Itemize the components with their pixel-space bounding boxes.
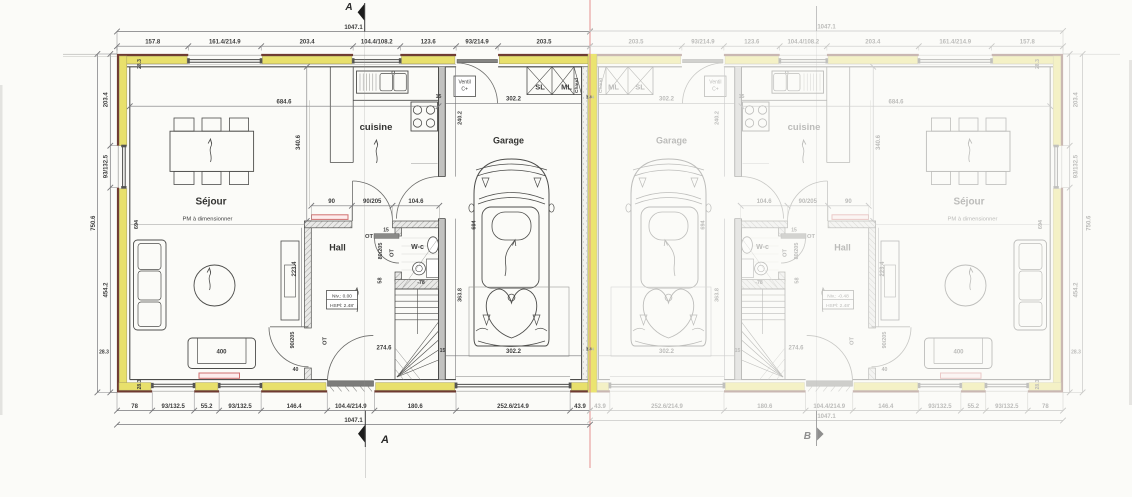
- svg-text:W-c: W-c: [411, 244, 424, 251]
- svg-text:40: 40: [882, 367, 888, 373]
- svg-text:90/205: 90/205: [290, 332, 296, 349]
- svg-text:A: A: [344, 2, 352, 13]
- svg-text:203.4: 203.4: [865, 40, 881, 46]
- svg-text:694: 694: [134, 219, 140, 229]
- svg-text:C+: C+: [461, 87, 468, 93]
- svg-text:203.4: 203.4: [1074, 92, 1080, 108]
- svg-text:28.3: 28.3: [99, 350, 109, 356]
- svg-text:302.2: 302.2: [506, 97, 522, 103]
- svg-text:93/132.5: 93/132.5: [104, 154, 110, 178]
- svg-text:750.6: 750.6: [1087, 215, 1093, 231]
- svg-text:OT: OT: [365, 234, 374, 240]
- svg-text:93/132.5: 93/132.5: [928, 404, 952, 410]
- svg-text:240.2: 240.2: [715, 111, 721, 125]
- svg-text:274.6: 274.6: [376, 346, 392, 352]
- svg-text:43.9: 43.9: [594, 404, 606, 410]
- svg-text:93/132.5: 93/132.5: [228, 404, 252, 410]
- svg-text:340.6: 340.6: [876, 134, 882, 150]
- svg-text:146.4: 146.4: [878, 404, 894, 410]
- svg-text:55.2: 55.2: [967, 404, 979, 410]
- svg-text:B: B: [804, 431, 811, 442]
- svg-text:203.4: 203.4: [300, 40, 316, 46]
- svg-text:302.2: 302.2: [659, 97, 675, 103]
- svg-text:HSPl: 2.48': HSPl: 2.48': [330, 303, 354, 309]
- svg-text:223.4: 223.4: [880, 261, 886, 277]
- svg-text:90/205: 90/205: [799, 199, 818, 205]
- svg-text:302.2: 302.2: [659, 349, 675, 355]
- svg-text:252.6/214.9: 252.6/214.9: [497, 404, 529, 410]
- svg-text:400: 400: [953, 350, 964, 356]
- svg-text:PM à dimensionner: PM à dimensionner: [948, 217, 998, 223]
- svg-text:28.3: 28.3: [137, 59, 143, 69]
- svg-text:180.6: 180.6: [757, 404, 773, 410]
- svg-text:90: 90: [845, 199, 852, 205]
- svg-text:694: 694: [701, 219, 707, 229]
- svg-text:180.6: 180.6: [408, 404, 424, 410]
- svg-text:93/214.9: 93/214.9: [465, 40, 489, 46]
- svg-text:OT: OT: [807, 234, 816, 240]
- svg-text:Garage: Garage: [493, 136, 524, 146]
- svg-text:OT: OT: [390, 249, 396, 258]
- svg-text:104.4/108.2: 104.4/108.2: [787, 40, 819, 46]
- svg-text:PM à dimensionner: PM à dimensionner: [183, 217, 233, 223]
- svg-text:93/132.5: 93/132.5: [162, 404, 186, 410]
- svg-text:58: 58: [378, 277, 384, 283]
- svg-text:43.9: 43.9: [574, 404, 586, 410]
- svg-text:240.2: 240.2: [457, 111, 463, 125]
- svg-text:Garage: Garage: [656, 136, 687, 146]
- svg-text:123.6: 123.6: [421, 40, 437, 46]
- svg-text:Séjour: Séjour: [195, 197, 226, 208]
- svg-text:363.8: 363.8: [715, 288, 721, 302]
- svg-text:ML: ML: [608, 83, 619, 92]
- svg-text:58: 58: [795, 277, 801, 283]
- svg-text:Séjour: Séjour: [953, 197, 984, 208]
- svg-text:1047.1: 1047.1: [344, 25, 363, 31]
- svg-text:15: 15: [735, 348, 741, 354]
- svg-text:302.2: 302.2: [506, 349, 522, 355]
- svg-text:454.2: 454.2: [104, 282, 110, 298]
- svg-text:28.3: 28.3: [1035, 59, 1041, 69]
- svg-text:15: 15: [739, 94, 745, 100]
- svg-text:340.6: 340.6: [296, 134, 302, 150]
- svg-text:252.6/214.9: 252.6/214.9: [651, 404, 683, 410]
- svg-text:1047.1: 1047.1: [817, 24, 836, 30]
- svg-text:55.2: 55.2: [201, 404, 213, 410]
- svg-text:750.6: 750.6: [91, 215, 97, 231]
- svg-text:ML: ML: [561, 83, 572, 92]
- svg-text:28.3: 28.3: [1035, 379, 1041, 389]
- svg-text:157.8: 157.8: [1020, 40, 1036, 46]
- svg-text:157.8: 157.8: [145, 40, 161, 46]
- svg-text:90: 90: [328, 199, 335, 205]
- svg-text:A: A: [380, 434, 389, 446]
- svg-text:123.6: 123.6: [744, 40, 760, 46]
- svg-text:161.4/214.9: 161.4/214.9: [939, 40, 971, 46]
- svg-text:694: 694: [1038, 219, 1044, 229]
- svg-text:Chaud: Chaud: [574, 78, 580, 93]
- svg-text:104.4/108.2: 104.4/108.2: [361, 40, 393, 46]
- svg-text:Hall: Hall: [329, 243, 346, 253]
- svg-text:363.8: 363.8: [457, 288, 463, 302]
- svg-text:203.5: 203.5: [628, 40, 644, 46]
- svg-text:78: 78: [1042, 404, 1049, 410]
- svg-text:684.6: 684.6: [888, 100, 904, 106]
- svg-text:161.4/214.9: 161.4/214.9: [209, 40, 241, 46]
- svg-text:OT: OT: [322, 337, 328, 346]
- svg-text:104.6: 104.6: [757, 199, 773, 205]
- svg-text:OT: OT: [850, 337, 856, 346]
- svg-text:15: 15: [791, 228, 797, 234]
- svg-text:Chaud: Chaud: [598, 78, 604, 93]
- svg-text:80/205: 80/205: [794, 243, 800, 260]
- svg-text:OT: OT: [782, 249, 788, 258]
- svg-text:203.4: 203.4: [104, 92, 110, 108]
- svg-text:cuisine: cuisine: [788, 122, 821, 133]
- svg-text:93/214.9: 93/214.9: [691, 40, 715, 46]
- svg-text:Ventil: Ventil: [458, 80, 470, 86]
- svg-text:93/132.5: 93/132.5: [995, 404, 1019, 410]
- svg-text:-78: -78: [417, 280, 425, 286]
- svg-text:694: 694: [471, 219, 477, 229]
- svg-text:SL: SL: [535, 83, 545, 92]
- svg-text:Niv.: -0.48: Niv.: -0.48: [827, 293, 849, 299]
- svg-text:223.4: 223.4: [292, 261, 298, 277]
- svg-text:3.4: 3.4: [588, 94, 594, 99]
- svg-text:1047.1: 1047.1: [817, 414, 836, 420]
- svg-text:28.3: 28.3: [1071, 350, 1081, 356]
- svg-text:W-c: W-c: [756, 244, 769, 251]
- svg-text:3.4: 3.4: [588, 346, 594, 351]
- svg-text:400: 400: [216, 350, 227, 356]
- svg-text:104.6: 104.6: [408, 199, 424, 205]
- svg-text:203.5: 203.5: [536, 40, 552, 46]
- svg-text:15: 15: [383, 228, 389, 234]
- svg-text:Ventil: Ventil: [709, 80, 721, 86]
- svg-text:90/205: 90/205: [363, 199, 382, 205]
- svg-text:40: 40: [293, 367, 299, 373]
- svg-text:C+: C+: [712, 87, 719, 93]
- svg-text:15: 15: [436, 94, 442, 100]
- svg-text:274.6: 274.6: [788, 346, 804, 352]
- svg-text:28.3: 28.3: [137, 379, 143, 389]
- svg-text:93/132.5: 93/132.5: [1074, 154, 1080, 178]
- svg-text:-78: -78: [755, 280, 763, 286]
- svg-text:SL: SL: [635, 83, 645, 92]
- svg-text:Hall: Hall: [834, 243, 851, 253]
- svg-text:684.6: 684.6: [276, 100, 292, 106]
- svg-text:Niv.: 0.00: Niv.: 0.00: [332, 293, 352, 299]
- svg-text:1047.1: 1047.1: [344, 418, 363, 424]
- svg-text:90/205: 90/205: [882, 332, 888, 349]
- svg-text:454.2: 454.2: [1074, 282, 1080, 298]
- svg-text:80/205: 80/205: [378, 243, 384, 260]
- svg-text:104.4/214.9: 104.4/214.9: [335, 404, 367, 410]
- svg-text:15: 15: [440, 348, 446, 354]
- svg-text:HSPl: 2.48': HSPl: 2.48': [826, 303, 850, 309]
- svg-text:78: 78: [131, 404, 138, 410]
- svg-text:146.4: 146.4: [287, 404, 303, 410]
- svg-text:104.4/214.9: 104.4/214.9: [813, 404, 845, 410]
